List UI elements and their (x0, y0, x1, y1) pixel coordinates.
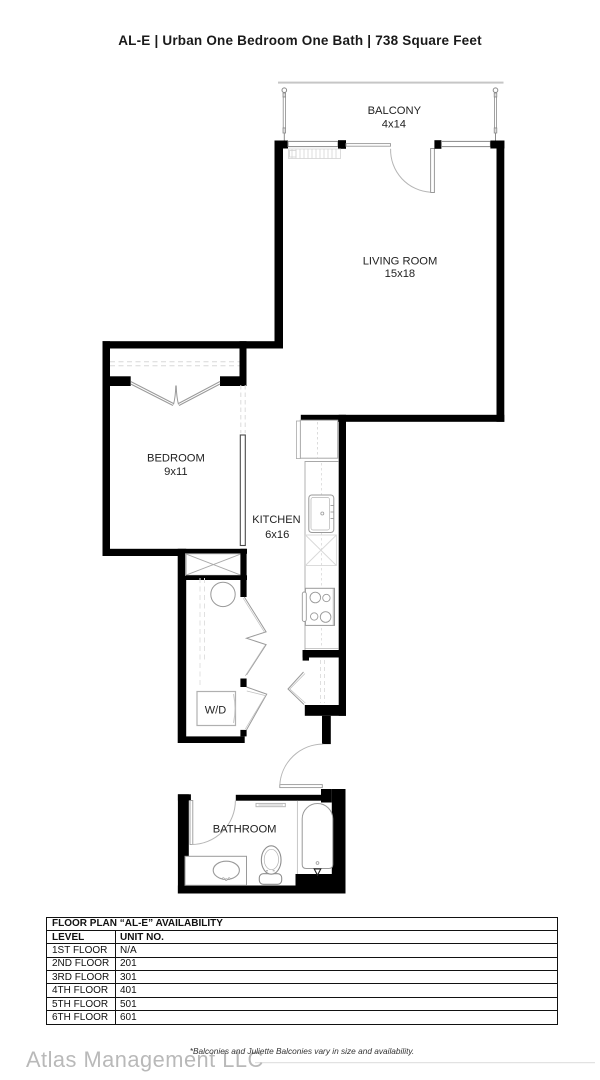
svg-text:BEDROOM: BEDROOM (147, 453, 205, 465)
svg-text:6x16: 6x16 (265, 529, 289, 541)
svg-text:BATHROOM: BATHROOM (213, 823, 277, 835)
svg-text:KITCHEN: KITCHEN (252, 514, 300, 526)
svg-text:9x11: 9x11 (164, 466, 187, 478)
svg-text:W/D: W/D (205, 705, 226, 717)
svg-text:4x14: 4x14 (382, 119, 406, 131)
svg-text:LIVING ROOM: LIVING ROOM (363, 255, 438, 267)
svg-text:BALCONY: BALCONY (368, 105, 422, 117)
svg-text:15x18: 15x18 (385, 268, 415, 280)
